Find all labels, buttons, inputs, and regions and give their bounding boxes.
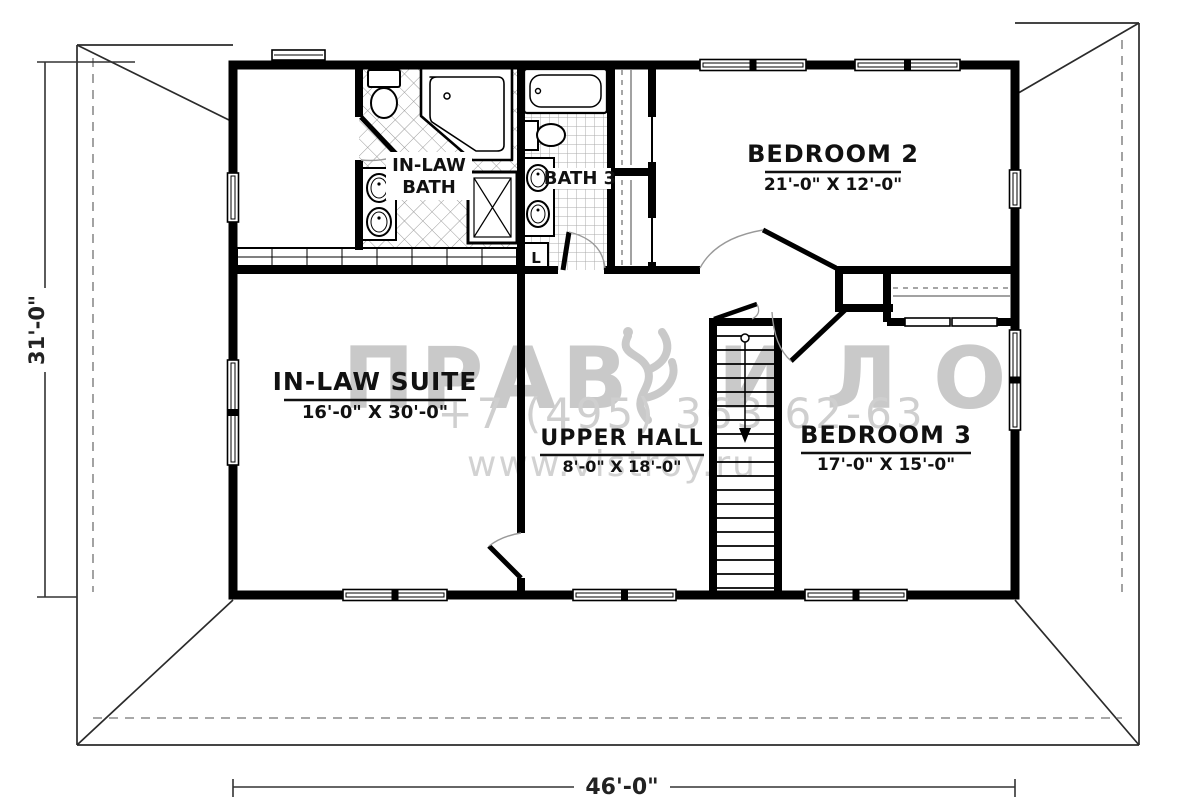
sliding-closet-doors	[905, 318, 997, 326]
linen-closet-label: L	[531, 249, 541, 267]
window	[272, 50, 325, 60]
bedroom2-door	[700, 230, 836, 268]
room-label-bedroom2: BEDROOM 2 21'-0" X 12'-0"	[747, 140, 919, 195]
inlaw-suite-name: IN-LAW SUITE	[273, 367, 478, 396]
window	[805, 590, 907, 601]
inlaw-bath-name-line1: IN-LAW	[392, 155, 466, 176]
bedroom3-entry-walls	[839, 266, 893, 322]
window	[228, 360, 239, 465]
bedroom2-name: BEDROOM 2	[747, 140, 919, 168]
inlaw-suite-door	[489, 533, 521, 578]
bedroom3-name: BEDROOM 3	[800, 421, 972, 449]
room-label-bath3: BATH 3	[544, 168, 616, 189]
window	[343, 590, 447, 601]
shower	[468, 172, 517, 243]
upper-hall-name: UPPER HALL	[540, 426, 703, 451]
window	[1010, 330, 1021, 430]
floor-plan-page: ПРАВ ИЛО +7 (495) 363 62-63 www.vistroy.…	[0, 0, 1200, 810]
depth-dimension-label: 31'-0"	[25, 295, 49, 365]
width-dimension: 46'-0"	[233, 775, 1015, 800]
suite-closet-band	[237, 248, 517, 266]
floor-plan-drawing: ПРАВ ИЛО +7 (495) 363 62-63 www.vistroy.…	[0, 0, 1200, 810]
room-label-inlaw-suite: IN-LAW SUITE 16'-0" X 30'-0"	[273, 367, 478, 423]
window	[1010, 170, 1021, 208]
window	[700, 60, 806, 71]
width-dimension-label: 46'-0"	[585, 775, 658, 800]
bathtub	[524, 69, 607, 113]
bedroom2-dims: 21'-0" X 12'-0"	[764, 175, 902, 195]
room-label-bedroom3: BEDROOM 3 17'-0" X 15'-0"	[800, 421, 972, 475]
room-label-inlaw-bath: IN-LAW BATH	[386, 152, 472, 200]
inlaw-bath-name-line2: BATH	[402, 177, 456, 198]
window	[573, 590, 676, 601]
bedroom3-dims: 17'-0" X 15'-0"	[817, 455, 955, 475]
inlaw-suite-dims: 16'-0" X 30'-0"	[302, 402, 448, 423]
upper-hall-dims: 8'-0" X 18'-0"	[563, 457, 682, 476]
toilet	[368, 70, 400, 118]
depth-dimension: 31'-0"	[25, 62, 135, 597]
bath3-name: BATH 3	[544, 168, 616, 189]
window	[855, 60, 960, 71]
stair-top-door	[714, 304, 759, 319]
window	[228, 173, 239, 222]
